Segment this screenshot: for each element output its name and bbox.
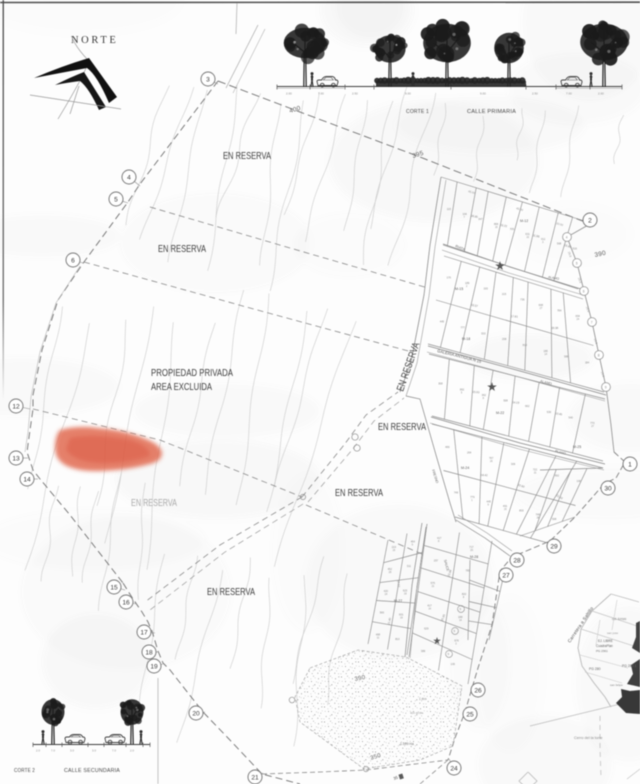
svg-text:566: 566 [380,611,385,615]
svg-text:3: 3 [206,76,210,83]
svg-text:2.50: 2.50 [532,92,538,96]
svg-text:col. lomas: col. lomas [612,617,627,621]
svg-text:17: 17 [140,629,148,636]
svg-text:238: 238 [502,337,507,341]
svg-text:19: 19 [150,663,158,670]
svg-text:san felipe: san felipe [610,683,623,687]
svg-text:AREA EXCLUIDA: AREA EXCLUIDA [151,382,212,393]
svg-text:EN RESERVA: EN RESERVA [131,498,177,509]
svg-text:CALLE PRIMARIA: CALLE PRIMARIA [467,109,516,115]
svg-text:20: 20 [192,710,200,717]
svg-text:9: 9 [605,385,607,389]
svg-text:26: 26 [474,687,482,694]
svg-text:17.81: 17.81 [511,314,519,318]
svg-text:2: 2 [588,217,592,224]
svg-text:14.19: 14.19 [512,400,520,405]
svg-text:EN RESERVA: EN RESERVA [378,422,426,433]
svg-text:M-22: M-22 [496,411,504,415]
svg-text:20.36: 20.36 [551,326,558,330]
svg-text:115: 115 [447,207,452,211]
svg-text:15.93: 15.93 [472,390,480,395]
svg-text:3.0: 3.0 [92,749,96,753]
svg-text:18: 18 [145,649,153,656]
svg-text:M-24: M-24 [461,466,469,470]
svg-text:24: 24 [450,765,458,772]
svg-text:M-15: M-15 [455,287,463,291]
svg-text:176: 176 [447,276,452,280]
svg-text:539: 539 [547,410,552,414]
svg-text:1.009: 1.009 [419,697,427,701]
svg-text:2.0: 2.0 [130,749,134,753]
svg-text:1.009 Ha: 1.009 Ha [400,742,414,746]
svg-text:7.0: 7.0 [51,749,55,753]
svg-text:368: 368 [438,382,443,386]
svg-text:EN RESERVA: EN RESERVA [158,244,206,255]
svg-text:309: 309 [511,462,516,466]
svg-text:7.0: 7.0 [112,749,116,753]
svg-text:777: 777 [460,326,465,330]
svg-text:Cerro del la torre: Cerro del la torre [574,736,603,740]
svg-text:7.00: 7.00 [318,92,324,96]
svg-text:16: 16 [122,599,130,606]
svg-text:746: 746 [454,491,459,495]
svg-text:445: 445 [440,320,445,324]
svg-text:21: 21 [251,774,259,781]
svg-text:2.50: 2.50 [352,92,358,96]
svg-text:18.42: 18.42 [481,473,489,477]
svg-text:PG 280: PG 280 [589,667,601,671]
svg-text:193: 193 [483,287,488,291]
svg-text:3.0: 3.0 [70,749,74,753]
svg-text:469: 469 [445,445,450,449]
svg-text:14: 14 [23,476,31,483]
svg-text:588: 588 [564,355,569,359]
svg-text:6: 6 [583,289,585,293]
svg-text:404 44.04: 404 44.04 [410,711,423,715]
svg-text:san jose: san jose [607,631,619,635]
svg-text:2.00: 2.00 [286,92,292,96]
svg-text:598: 598 [552,517,557,521]
svg-text:M-27: M-27 [394,599,402,603]
svg-text:25: 25 [466,711,474,718]
svg-text:13: 13 [12,455,20,462]
svg-text:7: 7 [591,320,593,324]
svg-text:813: 813 [523,343,528,347]
svg-text:264: 264 [467,450,472,454]
svg-text:598: 598 [503,399,508,403]
svg-text:257: 257 [434,559,439,563]
svg-text:5: 5 [576,261,578,265]
svg-text:568: 568 [557,242,562,246]
svg-text:NORTE: NORTE [71,35,118,46]
svg-text:CALLE SECUNDARIA: CALLE SECUNDARIA [64,768,120,774]
svg-text:389: 389 [421,649,426,653]
svg-text:4: 4 [127,174,131,181]
svg-text:PG 2561: PG 2561 [596,649,608,653]
svg-text:CuadraPlan: CuadraPlan [596,644,613,648]
svg-text:2.00: 2.00 [598,92,604,96]
svg-text:6: 6 [71,257,75,264]
svg-text:EJ. LIBRE: EJ. LIBRE [598,639,613,643]
svg-text:1: 1 [628,461,632,468]
svg-text:EN RESERVA: EN RESERVA [335,488,383,499]
svg-text:629: 629 [424,626,429,630]
svg-text:311: 311 [407,564,412,568]
svg-text:M-28: M-28 [470,555,478,559]
svg-text:803: 803 [519,508,524,512]
svg-text:12: 12 [12,403,20,410]
svg-text:29: 29 [550,543,558,550]
svg-text:M-12: M-12 [520,219,528,223]
svg-text:CORTE 2: CORTE 2 [14,768,35,774]
svg-text:705: 705 [510,227,515,231]
svg-text:30: 30 [604,485,612,492]
svg-text:106: 106 [451,662,456,666]
svg-text:736: 736 [520,298,525,302]
svg-text:M-25: M-25 [573,445,581,449]
svg-text:EN RESERVA: EN RESERVA [223,151,271,162]
svg-text:2.0: 2.0 [36,749,40,753]
svg-text:9.00: 9.00 [480,92,486,96]
svg-text:184: 184 [585,361,590,365]
svg-text:PROPIEDAD PRIVADA: PROPIEDAD PRIVADA [151,368,233,379]
svg-text:5: 5 [114,196,118,203]
svg-text:27: 27 [502,572,510,579]
svg-text:M-18: M-18 [462,337,470,341]
svg-text:215: 215 [502,292,507,296]
svg-text:28: 28 [513,557,521,564]
svg-text:15: 15 [110,584,118,591]
svg-text:540: 540 [569,415,574,419]
svg-text:662: 662 [525,404,530,408]
svg-text:347: 347 [478,217,483,221]
svg-text:8: 8 [598,353,600,357]
svg-text:516: 516 [573,247,578,251]
svg-text:810: 810 [395,637,400,641]
svg-text:9.00: 9.00 [405,92,411,96]
svg-text:7.00: 7.00 [566,92,572,96]
svg-text:784: 784 [557,309,562,313]
svg-text:EN RESERVA: EN RESERVA [207,587,255,598]
svg-text:CORTE 1: CORTE 1 [406,109,429,115]
svg-text:533: 533 [481,331,486,335]
svg-text:4: 4 [566,235,568,239]
svg-text:PG 283 1: PG 283 1 [622,664,636,668]
svg-text:692: 692 [555,473,560,477]
